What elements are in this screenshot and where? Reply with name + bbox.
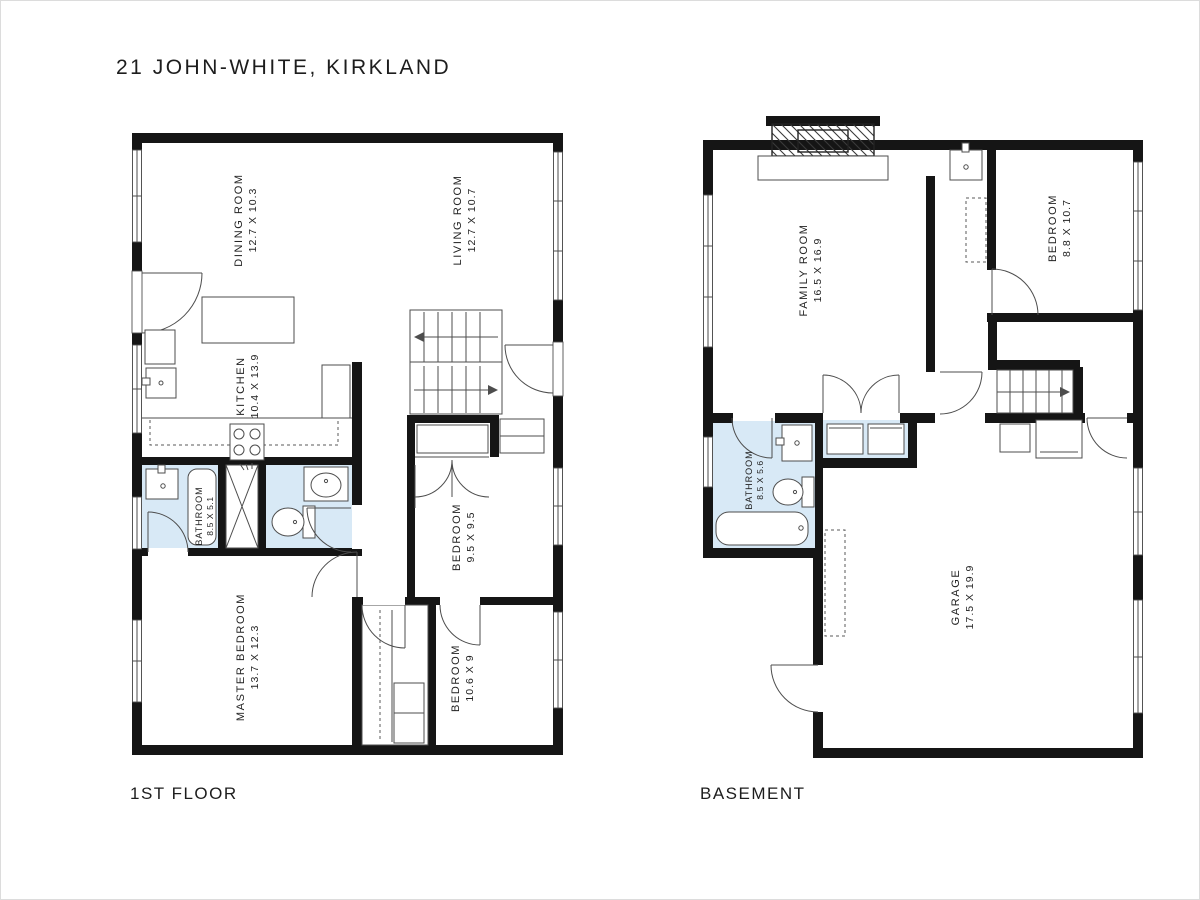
- room-label-family: FAMILY ROOM: [798, 224, 810, 317]
- basement-stairs: [997, 370, 1073, 413]
- hearth: [758, 156, 888, 180]
- stairs: [410, 310, 502, 414]
- room-label-garage: GARAGE: [950, 569, 962, 626]
- room-label-bedroom-mid: BEDROOM: [451, 503, 463, 571]
- kitchen-sink: [142, 368, 176, 398]
- room-dims-bedroom-basement: 8.8 X 10.7: [1061, 199, 1073, 257]
- basement-bedroom-door: [992, 269, 1038, 315]
- furnace: [1000, 424, 1030, 452]
- basement-plan: FAMILY ROOM 16.5 X 16.9 BEDROOM 8.8 X 10…: [703, 116, 1143, 758]
- stove: [230, 424, 264, 460]
- window: [704, 437, 713, 487]
- closet-door: [362, 597, 405, 648]
- window: [132, 345, 142, 433]
- washer: [827, 424, 863, 454]
- window: [1133, 468, 1143, 555]
- bathroom-sink: [146, 465, 178, 499]
- room-label-bedroom-basement: BEDROOM: [1047, 194, 1059, 262]
- room-label-bedroom-low: BEDROOM: [450, 644, 462, 712]
- dryer: [868, 424, 904, 454]
- garage-entry-door: [1087, 413, 1127, 458]
- room-dims-living: 12.7 X 10.7: [466, 188, 478, 253]
- room-labels-basement: FAMILY ROOM 16.5 X 16.9 BEDROOM 8.8 X 10…: [744, 194, 1073, 629]
- stair-arrow-down: [488, 385, 498, 395]
- room-dims-bathroom1: 8.5 X 5.1: [205, 496, 215, 535]
- kitchen-island: [202, 297, 294, 343]
- window: [553, 612, 563, 708]
- refrigerator: [145, 330, 175, 364]
- fireplace: [758, 116, 888, 180]
- garage-dashed-area: [825, 530, 845, 636]
- powder-sink: [304, 467, 348, 501]
- bedroom-low-door: [440, 597, 480, 645]
- window: [1133, 600, 1143, 713]
- laundry-double-doors: [823, 375, 899, 413]
- pantry-dashed: [966, 198, 986, 262]
- room-dims-kitchen: 10.4 X 13.9: [249, 354, 261, 419]
- entry-door: [132, 271, 202, 333]
- hall-closet: [417, 425, 488, 453]
- basement-caption: BASEMENT: [700, 784, 806, 804]
- master-door: [312, 552, 362, 597]
- kitchen-fixtures: [142, 297, 352, 460]
- window: [132, 620, 142, 702]
- kitchen-counter: [322, 365, 350, 418]
- bedroom-mid-closet-doors: [415, 457, 489, 497]
- room-label-bathroom1: BATHROOM: [194, 486, 204, 545]
- window: [703, 195, 713, 347]
- room-label-kitchen: KITCHEN: [235, 356, 247, 415]
- window: [553, 152, 563, 300]
- interior-walls: [132, 362, 563, 755]
- window: [132, 150, 142, 242]
- stair-arrow-up: [414, 332, 424, 342]
- family-room-door: [940, 372, 982, 414]
- room-dims-garage: 17.5 X 19.9: [964, 565, 976, 630]
- window: [1133, 162, 1143, 310]
- floor1-caption: 1ST FLOOR: [130, 784, 238, 804]
- room-label-master: MASTER BEDROOM: [235, 593, 247, 721]
- window: [553, 468, 563, 545]
- room-dims-dining: 12.7 X 10.3: [247, 188, 259, 253]
- bathtub: [716, 512, 808, 545]
- garage-side-door: [771, 665, 823, 712]
- room-label-bathroom-basement: BATHROOM: [744, 450, 754, 509]
- room-dims-bedroom-low: 10.6 X 9: [464, 654, 476, 701]
- window: [133, 497, 142, 549]
- room-label-dining: DINING ROOM: [233, 173, 245, 266]
- laundry: [823, 375, 904, 454]
- room-dims-family: 16.5 X 16.9: [812, 238, 824, 303]
- toilet: [272, 506, 315, 538]
- shower: [226, 463, 258, 548]
- master-closet: [362, 597, 428, 745]
- first-floor-plan: DINING ROOM 12.7 X 10.3 LIVING ROOM 12.7…: [132, 133, 563, 755]
- stair-arrow: [1060, 387, 1070, 397]
- toilet: [773, 477, 814, 507]
- utility-appliances: [1000, 420, 1082, 458]
- room-label-living: LIVING ROOM: [452, 175, 464, 266]
- floorplan-drawing: DINING ROOM 12.7 X 10.3 LIVING ROOM 12.7…: [0, 0, 1200, 900]
- room-dims-master: 13.7 X 12.3: [249, 625, 261, 690]
- floorplan-page: 21 JOHN-WHITE, KIRKLAND: [0, 0, 1200, 900]
- room-dims-bedroom-mid: 9.5 X 9.5: [465, 511, 477, 562]
- room-dims-bathroom-basement: 8.5 X 5.6: [755, 460, 765, 499]
